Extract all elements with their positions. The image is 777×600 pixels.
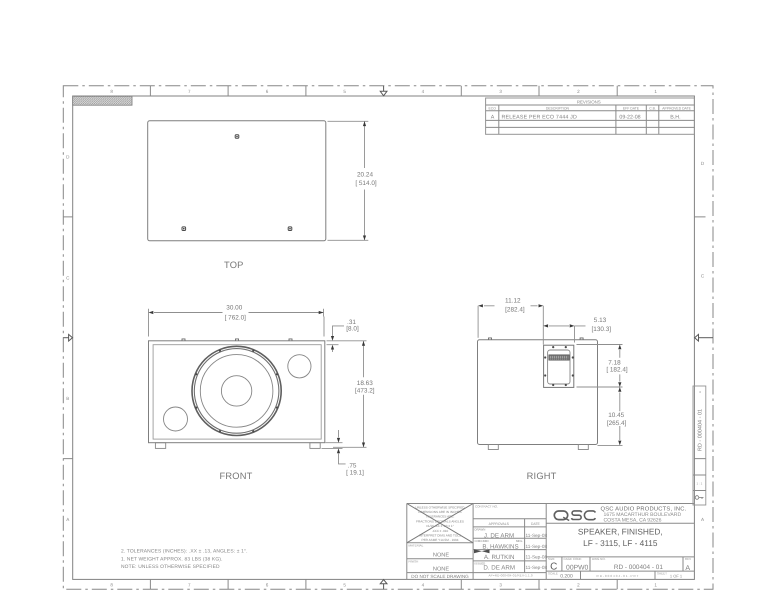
svg-text:5: 5 (343, 582, 346, 587)
svg-text:MFG: MFG (516, 539, 523, 543)
svg-text:6: 6 (266, 582, 269, 587)
svg-text:[265.4]: [265.4] (607, 420, 627, 427)
svg-text:11-Sep-08: 11-Sep-08 (526, 565, 548, 570)
svg-text:[ 514.0]: [ 514.0] (355, 180, 377, 187)
svg-text:4: 4 (422, 582, 425, 587)
svg-text:RD-000404-01.PRT: RD-000404-01.PRT (597, 574, 639, 578)
svg-text:[130.3]: [130.3] (592, 326, 612, 333)
svg-text:11-Sep-08: 11-Sep-08 (526, 555, 548, 560)
svg-text:A. RUTKIN: A. RUTKIN (484, 554, 515, 561)
svg-text:UNLESS OTHERWISE SPECIFIED: UNLESS OTHERWISE SPECIFIED (415, 505, 465, 509)
svg-text:FRACTIONS DECIMALS ANGLES: FRACTIONS DECIMALS ANGLES (416, 519, 464, 523)
svg-text:EFF DATE: EFF DATE (623, 107, 640, 111)
svg-text:COSTA MESA, CA 92626: COSTA MESA, CA 92626 (604, 518, 662, 524)
svg-text:3: 3 (499, 582, 502, 587)
svg-text:TOP: TOP (224, 260, 244, 270)
svg-text:REV: REV (685, 557, 691, 561)
svg-text:D: D (66, 155, 70, 160)
svg-text:B.H.: B.H. (670, 115, 680, 121)
svg-text:.75: .75 (348, 462, 357, 469)
svg-text:C.B.: C.B. (649, 107, 656, 111)
svg-text:11-Sep-08: 11-Sep-08 (526, 544, 548, 549)
svg-text:±1/16 .XX ± .03 ± 1°: ±1/16 .XX ± .03 ± 1° (426, 524, 454, 528)
svg-text:PER ASME Y14.5M - 1994: PER ASME Y14.5M - 1994 (422, 538, 459, 542)
svg-text:AP=RD-000404-01/REV-1.1.0: AP=RD-000404-01/REV-1.1.0 (489, 574, 533, 578)
svg-text:[473.2]: [473.2] (355, 388, 375, 395)
svg-text:DIMENSIONS ARE IN INCHES: DIMENSIONS ARE IN INCHES (418, 510, 461, 514)
svg-text:A: A (491, 115, 495, 121)
svg-text:NOTE: UNLESS OTHERWISE SPECIFI: NOTE: UNLESS OTHERWISE SPECIFIED (121, 564, 220, 570)
svg-text:[ 182.4]: [ 182.4] (606, 367, 628, 374)
svg-text:TOLERANCES ARE:: TOLERANCES ARE: (426, 515, 455, 519)
svg-text:1. NET WEIGHT APPROX. 83 LBS (: 1. NET WEIGHT APPROX. 83 LBS (38 KG). (121, 557, 223, 563)
svg-text:CONTRACT NO.: CONTRACT NO. (475, 504, 498, 508)
svg-text:REVISIONS: REVISIONS (577, 100, 601, 105)
svg-text:APPROVALS: APPROVALS (489, 522, 510, 526)
svg-text:FINISH: FINISH (409, 560, 419, 564)
svg-text:7.18: 7.18 (608, 360, 621, 367)
svg-text:MATERIAL: MATERIAL (409, 544, 424, 548)
svg-text:8: 8 (110, 582, 113, 587)
svg-text:00PW0: 00PW0 (566, 564, 589, 571)
svg-text:SIZE: SIZE (548, 557, 555, 561)
svg-text:20.24: 20.24 (357, 171, 373, 178)
svg-text:10.45: 10.45 (608, 412, 624, 419)
svg-text:5.13: 5.13 (594, 317, 607, 324)
svg-text:7: 7 (188, 89, 191, 94)
svg-text:11.12: 11.12 (505, 297, 521, 304)
svg-text:18.63: 18.63 (357, 380, 373, 387)
svg-text:DWG NO.: DWG NO. (592, 557, 606, 561)
svg-text:SCALE: SCALE (548, 572, 558, 576)
svg-text:1: 1 (654, 89, 657, 94)
svg-text:SPEAKER, FINISHED,: SPEAKER, FINISHED, (578, 527, 663, 537)
svg-text:6: 6 (266, 89, 269, 94)
svg-text:8: 8 (110, 89, 113, 94)
svg-text:A: A (66, 517, 70, 522)
svg-text:2: 2 (577, 89, 580, 94)
svg-text:RELEASE PER ECO 7444 JD: RELEASE PER ECO 7444 JD (502, 115, 578, 121)
svg-text:D: D (701, 161, 705, 166)
svg-text:A: A (698, 391, 702, 393)
svg-text:7: 7 (188, 582, 191, 587)
svg-text:4: 4 (422, 89, 425, 94)
svg-text:A: A (701, 517, 705, 522)
svg-text:[282.4]: [282.4] (505, 307, 525, 314)
svg-text:0.200: 0.200 (560, 573, 573, 579)
svg-text:1: 1 (654, 582, 657, 587)
svg-text:DO NOT SCALE DRAWING: DO NOT SCALE DRAWING (411, 574, 469, 579)
svg-text:APPROVED DATE: APPROVED DATE (662, 107, 691, 111)
svg-text:1 OF 1: 1 OF 1 (670, 573, 683, 578)
svg-text:DATE: DATE (531, 522, 541, 526)
svg-text:[ 19.1]: [ 19.1] (346, 470, 364, 477)
svg-text:2: 2 (577, 582, 580, 587)
svg-text:D. DE ARM: D. DE ARM (483, 565, 515, 572)
svg-text:2. TOLERANCES (INCHES): .XX ±: 2. TOLERANCES (INCHES): .XX ± .13, ANGLE… (121, 548, 248, 554)
svg-text:B: B (66, 396, 69, 401)
svg-text:30.00: 30.00 (226, 305, 242, 312)
svg-text:11-Sep-08: 11-Sep-08 (526, 533, 548, 538)
svg-text:RD - 000404 - 01: RD - 000404 - 01 (614, 564, 663, 571)
svg-text:C: C (701, 273, 705, 278)
svg-text:5: 5 (343, 89, 346, 94)
svg-text:CAGE CODE: CAGE CODE (564, 557, 582, 561)
svg-text:[ 762.0]: [ 762.0] (225, 315, 247, 322)
svg-text:FRONT: FRONT (219, 471, 252, 481)
svg-text:J. DE ARM: J. DE ARM (484, 532, 514, 539)
svg-text:B. HAWKINS: B. HAWKINS (482, 543, 518, 550)
svg-text:DESCRIPTION: DESCRIPTION (546, 107, 570, 111)
svg-text:ECO: ECO (489, 107, 497, 111)
svg-text:1 : 1: 1 : 1 (696, 482, 702, 486)
svg-text:09-22-08: 09-22-08 (619, 115, 640, 121)
svg-text:.XXX ± .010: .XXX ± .010 (432, 529, 449, 533)
svg-text:NONE: NONE (433, 566, 449, 572)
svg-text:RD - 000404 - 01: RD - 000404 - 01 (698, 409, 704, 451)
svg-text:[8.0]: [8.0] (346, 326, 359, 333)
svg-text:INTERPRET DIMS AND TOLS: INTERPRET DIMS AND TOLS (419, 534, 461, 538)
svg-text:SHEET: SHEET (657, 572, 667, 576)
svg-text:NONE: NONE (433, 553, 449, 559)
svg-text:DRAWN: DRAWN (475, 528, 486, 532)
svg-text:LF - 3115, LF - 4115: LF - 3115, LF - 4115 (583, 538, 658, 548)
svg-text:3: 3 (499, 89, 502, 94)
svg-text:RIGHT: RIGHT (527, 471, 557, 481)
svg-text:A: A (685, 565, 690, 572)
svg-text:C: C (66, 275, 70, 280)
